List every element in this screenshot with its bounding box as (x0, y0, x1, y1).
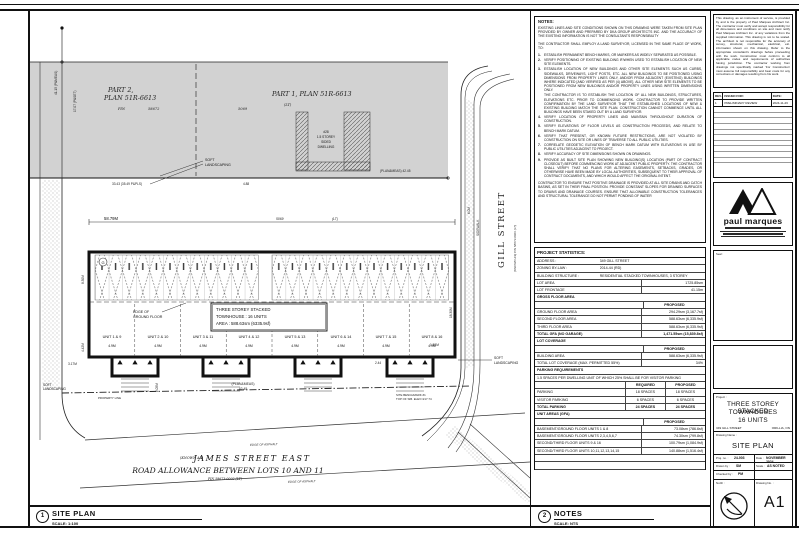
stats-title: PROJECT STATISTICS: (535, 248, 705, 258)
svg-text:(PLAN&MEAS) 42.45: (PLAN&MEAS) 42.45 (380, 169, 411, 173)
detail-title: SITE PLAN (52, 509, 96, 518)
stats-row: SECOND/THIRD FLOOR UNITS 9 & 16100.79sm … (535, 440, 705, 447)
architect-logo-box: paul marques (713, 182, 793, 246)
detail-underline (554, 519, 654, 520)
svg-text:EDGE OF: EDGE OF (133, 310, 150, 314)
stats-row: THIRD FLOOR AREA588.63sm (6,335.9sf) (535, 324, 705, 331)
notes-closing: CONTRACTOR TO ENSURE THAT POSITIVE DRAIN… (538, 181, 702, 198)
part1-lt: (LT) (284, 103, 292, 107)
drawn-value: SM (736, 464, 741, 468)
note-item: THE CONTRACTOR IS TO ESTABLISH THE LOCAT… (538, 93, 702, 114)
svg-text:UNIT 5 & 13: UNIT 5 & 13 (285, 335, 306, 339)
svg-text:SIDEWALK: SIDEWALK (476, 219, 480, 236)
existing-lands (30, 26, 449, 179)
svg-text:UNIT 4 & 12: UNIT 4 & 12 (239, 335, 260, 339)
notes-paragraph: THE CONTRACTOR SHALL EMPLOY A LAND SURVE… (538, 42, 702, 50)
svg-text:4.9M: 4.9M (382, 344, 390, 348)
note-item: 7.CORRELATE GEODETIC ELEVATION OF BENCH … (538, 143, 702, 151)
svg-text:4.9M: 4.9M (245, 344, 253, 348)
stats-header-row: REQUIREDPROPOSED (535, 382, 705, 389)
svg-text:G: G (101, 260, 104, 265)
revision-row: 1 PRELIMINARY REVIEW 2024-11-26 (714, 100, 792, 107)
dim-lt: (LT) (332, 217, 338, 221)
svg-text:41.15 (P&MEAS): 41.15 (P&MEAS) (54, 71, 58, 95)
svg-text:18.30M: 18.30M (449, 307, 453, 318)
project-name: TOWNHOUSES (714, 409, 792, 416)
architect-name: paul marques (714, 216, 792, 226)
svg-text:UNIT 3 & 11: UNIT 3 & 11 (193, 335, 214, 339)
footer-strip-divider (28, 505, 710, 507)
svg-text:PROPERTY LINE: PROPERTY LINE (98, 396, 121, 400)
drawing-name: SITE PLAN (714, 441, 792, 450)
note-item: 8.VERIFY ACCURACY OF SITE DIMENSIONS SHO… (538, 152, 702, 156)
detail-number-bubble: 1 (36, 510, 49, 523)
svg-text:4.9M: 4.9M (337, 344, 345, 348)
project-city: ORILLIA, ON (772, 426, 790, 430)
svg-text:SOFT: SOFT (205, 158, 215, 162)
stats-row: BUILDING STRUCTURE :RESIDENTIAL STACKED … (535, 273, 705, 280)
sheet-right-border (795, 9, 797, 528)
svg-text:4.9M: 4.9M (291, 344, 299, 348)
site-plan-drawing: #28 1.5 STOREY SIDED DWELLING PART 2, PL… (28, 11, 530, 505)
dim-5879: 58.79M (104, 216, 118, 221)
note-item: 3.ESTABLISH LOCATION OF NEW BUILDINGS AN… (538, 67, 702, 92)
architect-logo-icon (727, 188, 779, 215)
svg-text:LANDSCAPING: LANDSCAPING (205, 163, 231, 167)
date-label: Date : (756, 456, 764, 460)
building-info-box: THREE STOREY STACKED TOWNHOUSE : 16 UNIT… (211, 303, 327, 331)
disclaimer-box: This drawing, as an instrument of servic… (713, 14, 793, 88)
svg-text:42.45: 42.45 (239, 387, 248, 391)
note-item: 6.VERIFY THAT PRESENT, OR KNOWN FUTURE R… (538, 134, 702, 142)
james-pin: PIN 58673-0002 (LT) (207, 477, 243, 481)
stats-row: SECOND/THIRD FLOOR UNITS 10,11,12,13,14,… (535, 448, 705, 455)
stats-section-row: LOT COVERAGE (535, 338, 705, 345)
part2-label: PART 2, (107, 86, 133, 94)
edge-of-asphalt: EDGE OF ASPHALT (288, 479, 317, 484)
parcel-number: 5069 (238, 107, 248, 111)
logo-subtext-bar (720, 231, 786, 232)
logo-subtext-bar (725, 227, 781, 229)
notes-title: NOTES: (538, 20, 702, 24)
svg-text:3.17M: 3.17M (68, 362, 77, 366)
projno-label: Proj. no. : (716, 456, 728, 460)
stats-row: PARKING18 SPACES18 SPACES (535, 389, 705, 396)
project-name: 16 UNITS (714, 417, 792, 424)
svg-text:4.9M: 4.9M (108, 344, 116, 348)
parking-stalls-west (95, 255, 258, 300)
stats-row: TOTAL LOT COVERAGE (MAX. PERMITTED 55%)3… (535, 360, 705, 367)
svg-text:UNIT 8 & 16: UNIT 8 & 16 (422, 335, 443, 339)
svg-text:TOWNHOUSE : 16 UNITS: TOWNHOUSE : 16 UNITS (216, 314, 267, 319)
part2-label: PLAN 51R-6613 (103, 94, 156, 102)
note-item: 4.VERIFY LOCATION OF PROPERTY LINES AND … (538, 115, 702, 123)
dwelling-label: DWELLING (318, 145, 335, 149)
detail-scale: SCALE: NTS (554, 521, 578, 526)
revision-header: REV. ISSUED FOR: DATE: (714, 93, 792, 100)
drawn-label: Drawn by : (716, 464, 730, 468)
porches (112, 358, 433, 391)
drawing-sheet-page: { "page": { "footer_left": {"num":"1","t… (0, 0, 799, 532)
stats-row: ZONING BY-LAW :2014-44 (RD) (535, 265, 705, 272)
stats-header-row: PROPOSED (535, 302, 705, 309)
svg-text:(PLAN&MEAS): (PLAN&MEAS) (232, 382, 255, 386)
stats-row: TOTAL PARKING24 SPACES24 SPACES (535, 404, 705, 411)
svg-text:AREA : 588.63sm (6335.9sf): AREA : 588.63sm (6335.9sf) (216, 321, 271, 326)
detail-scale: SCALE: 1:100 (52, 521, 78, 526)
stats-section-row: UNIT AREAS (GFA) (535, 411, 705, 418)
gill-known-as: (KNOWN AS) PIN 58673-0001 (LT) (513, 225, 517, 272)
stats-row: BASEMENT/GROUND FLOOR UNITS 1 & 873.08sm… (535, 426, 705, 433)
stats-empty-row (535, 455, 705, 462)
projno-value: 24-003 (734, 456, 745, 460)
dim-5069: 5069 (276, 217, 284, 221)
stats-header-row: PROPOSED (535, 419, 705, 426)
overall-dimension: 58.79M 5069 (LT) (89, 216, 455, 225)
logo-subtext-bar (721, 236, 785, 237)
notes-paragraph: EXISTING LINES AND SITE CONDITIONS SHOWN… (538, 26, 702, 38)
soft-landscaping-lower-left: LANDSCAPING (43, 387, 66, 391)
pin-label: PIN (117, 107, 126, 111)
svg-text:UNIT 6 & 14: UNIT 6 & 14 (331, 335, 352, 339)
note-item: 2.VERIFY POSITIONING OF EXISTING BUILDIN… (538, 58, 702, 66)
svg-text:4.42M: 4.42M (81, 343, 85, 352)
consultant-box (713, 345, 793, 389)
svg-text:2.44: 2.44 (375, 361, 381, 365)
logo-subtext-bar (723, 233, 783, 234)
svg-text:2.05M: 2.05M (155, 383, 159, 392)
note-item: 5.VERIFY ELEVATIONS OF FLOOR LEVELS AS C… (538, 124, 702, 132)
svg-text:THREE STOREY STACKED: THREE STOREY STACKED (216, 307, 270, 312)
svg-text:UNIT 2 & 10: UNIT 2 & 10 (148, 335, 169, 339)
drawing-number: A1 (764, 494, 786, 512)
title-block: Project : THREE STOREY STACKED TOWNHOUSE… (713, 393, 793, 527)
svg-text:4.88: 4.88 (243, 182, 249, 186)
stats-row: LOT AREA1725.85sm (535, 280, 705, 287)
project-label: Project : (716, 395, 727, 399)
project-address: 349 GILL STREET (716, 426, 742, 430)
svg-text:4.9M: 4.9M (154, 344, 162, 348)
revision-table: REV. ISSUED FOR: DATE: 1 PRELIMINARY REV… (713, 92, 793, 178)
detail-number-bubble: 2 (538, 510, 551, 523)
svg-text:8.30M: 8.30M (81, 275, 85, 284)
stats-note-row: 1.5 SPACES PER DWELLING UNIT OF WHICH 25… (535, 375, 705, 382)
footer-site-plan-label: 1 SITE PLAN SCALE: 1:100 (36, 509, 236, 533)
stats-row: BASEMENT/GROUND FLOOR UNITS 2,3,4,5,6,77… (535, 433, 705, 440)
footer-notes-label: 2 NOTES SCALE: NTS (538, 509, 708, 533)
svg-text:1.50M: 1.50M (430, 343, 439, 347)
gill-street-label: GILL STREET (497, 191, 507, 268)
dwelling-label: 1.5 STOREY (317, 135, 336, 139)
seal-box: Seal : (713, 250, 793, 341)
parking-stalls-east (272, 255, 449, 300)
notes-panel: NOTES: EXISTING LINES AND SITE CONDITION… (534, 16, 706, 243)
stats-row: BUILDING AREA588.63sm (6,335.9sf) (535, 353, 705, 360)
part1-label: PART 1, PLAN 51R-6613 (271, 90, 352, 98)
scale-value: AS NOTED (767, 464, 785, 468)
revision-empty-rows (714, 107, 792, 163)
note-item: 1.ESTABLISH PERMANENT BENCH MARKS, OR MA… (538, 53, 702, 57)
svg-text:33.43 (35.49 P&PLS): 33.43 (35.49 P&PLS) (112, 182, 142, 186)
drawing-no-label: Drawing No. : (756, 481, 774, 485)
svg-text:UNIT 1 & 9: UNIT 1 & 9 (103, 335, 122, 339)
checked-label: Checked by : (716, 472, 733, 476)
detail-title: NOTES (554, 509, 582, 518)
svg-text:GROUND FLOOR: GROUND FLOOR (133, 315, 163, 319)
stats-row: TOTAL GFA (NO GARAGE)1,471.55sm (15,839.… (535, 331, 705, 338)
stats-empty-row (535, 462, 705, 469)
dwelling-label: #28 (323, 130, 329, 134)
svg-text:UNIT 7 & 15: UNIT 7 & 15 (376, 335, 397, 339)
stats-section-row: GROSS FLOOR AREA (535, 294, 705, 301)
soft-landscaping-right: LANDSCAPING (494, 361, 519, 365)
project-statistics-table: PROJECT STATISTICS: ADDRESS :349 GILL ST… (534, 247, 706, 470)
drawing-name-label: Drawing Name : (716, 433, 737, 437)
north-arrow-icon (719, 491, 749, 521)
james-street-label: JAMES STREET EAST (191, 454, 310, 463)
stats-row: VISITOR PARKING6 SPACES6 SPACES (535, 397, 705, 404)
edge-of-asphalt: EDGE OF ASPHALT (250, 442, 279, 447)
outer-top-thin-line (0, 4, 799, 5)
stats-section-row: PARKING REQUIREMENTS (535, 367, 705, 374)
detail-underline (52, 519, 202, 520)
scale-label: Scale : (756, 464, 765, 468)
soft-landscaping-right: SOFT (494, 356, 503, 360)
checked-value: PM (738, 472, 743, 476)
north-label: North : (716, 481, 725, 485)
seal-label: Seal : (716, 252, 723, 256)
stats-header-row: PROPOSED (535, 346, 705, 353)
svg-text:4.9M: 4.9M (199, 344, 207, 348)
disclaimer-text: This drawing, as an instrument of servic… (716, 17, 790, 77)
pin-number: 58672 (148, 107, 160, 111)
stats-row: SECOND FLOOR AREA588.63sm (6,335.9sf) (535, 316, 705, 323)
plan-notes-divider (530, 9, 531, 528)
stats-row: ADDRESS :349 GILL STREET (535, 258, 705, 265)
stats-row: GROUND FLOOR AREA294.29sm (3,167.7sf) (535, 309, 705, 316)
notes-titleblock-divider (710, 9, 711, 528)
note-item: 9.PROVIDE AS BUILT SITE PLAN SHOWING NEW… (538, 158, 702, 179)
date-value: NOVEMBER 2024 (766, 456, 792, 464)
svg-text:TOP OF SIB. ELEV=217.74: TOP OF SIB. ELEV=217.74 (396, 397, 432, 401)
road-allowance-label: ROAD ALLOWANCE BETWEEN LOTS 10 AND 11 (131, 466, 324, 475)
dwelling-label: SIDED (321, 140, 331, 144)
svg-text:17.07 (P&SET): 17.07 (P&SET) (73, 91, 77, 112)
stats-row: LOT FRONTAGE41.15m (535, 287, 705, 294)
